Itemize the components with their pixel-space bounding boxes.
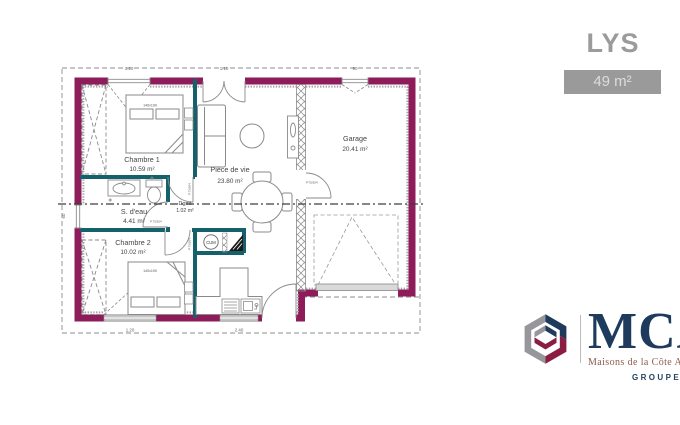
room-label-piece-de-vie: Pièce de vie 23.80 m² [210, 165, 249, 185]
room-label-dgmt: Dgmt 1.02 m² [176, 201, 194, 214]
mca-logo: MCA Maisons de la Côte Atlantique GROUPE… [518, 311, 680, 382]
door-label-sdeau: P.73/204 [150, 220, 162, 224]
logo-brand: MCA [588, 311, 680, 354]
room-label-chambre2: Chambre 2 10.02 m² [115, 238, 151, 256]
sofa [198, 105, 226, 167]
svg-text:4.41 m²: 4.41 m² [123, 218, 145, 225]
window-sdeau [75, 205, 82, 228]
technical-hatch-icon [229, 235, 243, 252]
room-label-sdeau: S. d'eau 4.41 m² [121, 207, 147, 225]
dim-left-window: 60 [61, 213, 66, 218]
room-label-garage: Garage 20.41 m² [342, 134, 367, 153]
dim-bottom-window: 1.20 [126, 328, 135, 333]
svg-text:Chambre 1: Chambre 1 [124, 155, 160, 164]
svg-text:20.41 m²: 20.41 m² [342, 146, 367, 153]
svg-text:1.02 m²: 1.02 m² [176, 208, 194, 214]
bed2-size-label: 140x190 [143, 269, 157, 273]
dim-kitchen-window: 2.40 [235, 328, 244, 333]
svg-text:10.59 m²: 10.59 m² [129, 166, 154, 173]
window-cuisine [220, 315, 258, 321]
window-garage [342, 78, 368, 94]
svg-text:Chambre 2: Chambre 2 [115, 238, 151, 247]
stove-icon [222, 299, 239, 313]
door-chambre2 [165, 230, 190, 255]
bed1-size-label: 140x190 [143, 104, 157, 108]
door-label-chambre2: P.73/204 [188, 238, 192, 250]
washbasin-icon [108, 180, 140, 202]
wardrobe-chambre1 [82, 85, 106, 174]
logo-group: GROUPE HEXAOM [588, 373, 680, 382]
sideboard [288, 116, 299, 158]
door-garden [262, 284, 296, 318]
svg-text:Garage: Garage [343, 134, 367, 143]
svg-text:Pièce de vie: Pièce de vie [210, 165, 249, 174]
coffee-table [240, 124, 264, 148]
garage-door [314, 215, 398, 291]
dim-entrance: 1.10 [220, 66, 229, 71]
wardrobe-chambre2 [82, 240, 106, 315]
door-garage-access [306, 173, 331, 198]
nightstand-chambre1 [185, 108, 194, 130]
nightstand-chambre2 [185, 282, 194, 304]
logo-divider [580, 315, 581, 363]
dim-top-window: 1.20 [125, 66, 134, 71]
mca-logo-icon [518, 311, 573, 366]
logo-subtitle: Maisons de la Côte Atlantique [588, 357, 680, 368]
svg-text:CUM: CUM [206, 240, 216, 245]
svg-text:10.02 m²: 10.02 m² [120, 249, 145, 256]
dim-garage-window: 90 [353, 66, 358, 71]
door-label-chambre1: P.73/204 [188, 183, 192, 195]
svg-text:S. d'eau: S. d'eau [121, 207, 147, 216]
room-label-chambre1: Chambre 1 10.59 m² [124, 155, 160, 173]
sink-icon [241, 299, 260, 313]
garage-party-wall [296, 85, 307, 292]
wc-icon [146, 177, 162, 204]
svg-text:23.80 m²: 23.80 m² [217, 178, 242, 185]
water-heater: CUM [204, 233, 243, 252]
door-label-garage: P.75/204 [306, 181, 318, 185]
entrance-door [203, 81, 245, 102]
